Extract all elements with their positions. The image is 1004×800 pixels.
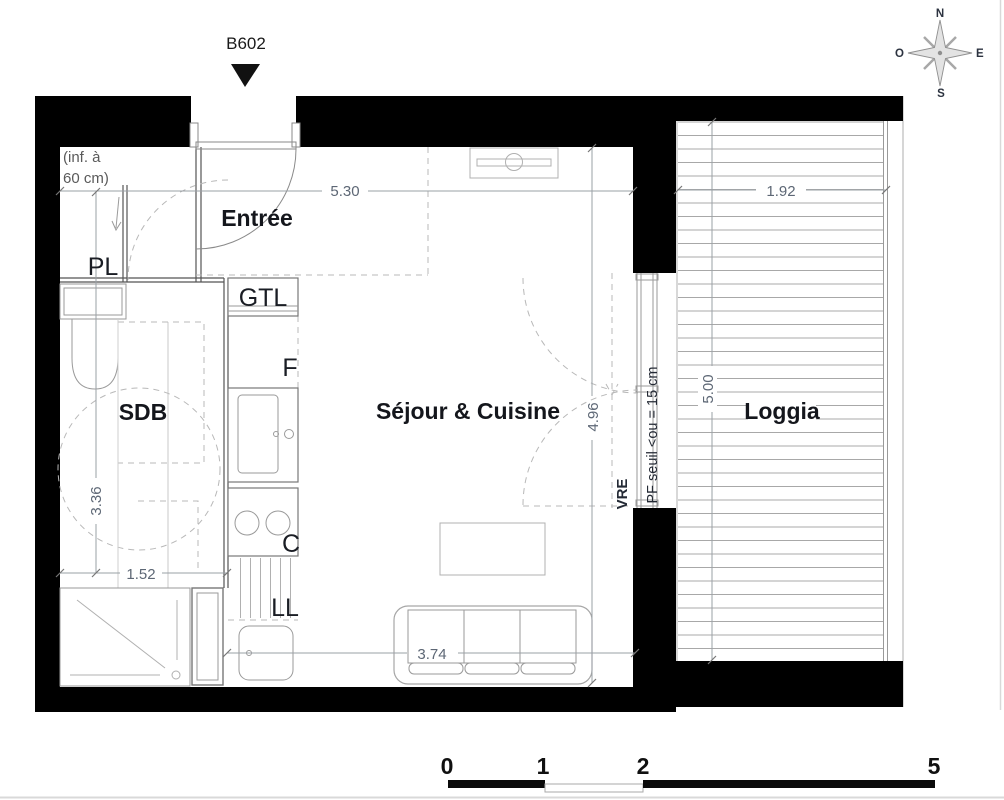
compass-s: S [937,88,945,100]
floor-plan-page: 5.30 1.52 3.74 3.36 4.96 1.92 5.00 Entré… [0,0,1004,800]
label-vre: VRE [614,479,631,510]
scale-tick-5: 5 [928,753,941,779]
dim-loggia-depth: 5.00 [700,374,717,403]
vanity-sink [228,388,298,482]
partition-walls [60,147,228,588]
unit-arrow-icon [231,64,260,87]
toilet [60,284,126,588]
sofa [394,606,592,684]
dim-loggia-width: 1.92 [766,183,795,200]
label-washer: LL [271,594,299,622]
dim-sdb-depth: 3.36 [88,486,105,515]
label-ceiling-note-2: 60 cm) [63,170,109,187]
compass-rose-icon: N E S O [895,8,984,100]
sdb-door-panel [192,588,223,685]
compass-n: N [936,8,944,20]
floor-plan-canvas: 5.30 1.52 3.74 3.36 4.96 1.92 5.00 Entré… [0,0,1004,800]
unit-marker: B602 [226,34,266,87]
label-sdb: SDB [119,399,168,425]
dim-sejour-depth: 4.96 [585,402,602,431]
label-pl: PL [88,253,119,281]
label-entree: Entrée [221,205,293,231]
label-loggia: Loggia [744,398,820,424]
label-fridge: F [282,354,297,382]
scale-tick-1: 1 [537,753,550,779]
compass-o: O [895,48,904,60]
shower [60,588,190,686]
label-ceiling-note-1: (inf. à [63,149,101,166]
dim-entree-width: 5.30 [330,183,359,200]
compass-e: E [976,48,984,60]
coffee-table [440,523,545,575]
sdb-door-swing [128,180,228,280]
label-window-sill-note: PF seuil <ou = 15 cm [645,366,661,503]
unit-number: B602 [226,34,266,53]
window-pf [523,273,658,508]
label-cooktop: C [282,530,300,558]
radiator [470,148,558,178]
scale-tick-0: 0 [441,753,454,779]
label-sejour: Séjour & Cuisine [376,398,560,424]
dim-sdb-width: 1.52 [126,566,155,583]
label-gtl: GTL [239,284,288,312]
scale-bar: 0 1 2 5 [441,753,941,792]
dim-sejour-width: 3.74 [417,646,446,663]
scale-tick-2: 2 [637,753,650,779]
